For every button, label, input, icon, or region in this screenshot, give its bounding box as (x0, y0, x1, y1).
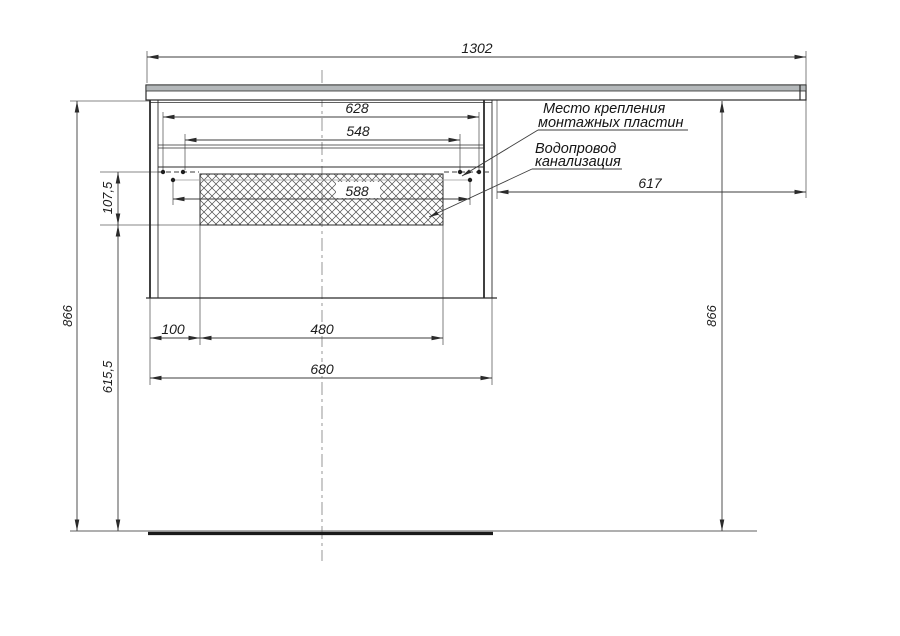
dimension-lines (77, 57, 806, 531)
technical-drawing-canvas: 1302 628 548 588 617 866 107,5 615,5 866… (0, 0, 900, 636)
dim-mount-outer-span: 628 (345, 100, 369, 116)
dim-mount-inner-span: 548 (346, 123, 370, 139)
dim-left-inset: 100 (161, 321, 185, 337)
dim-recess-width: 480 (310, 321, 334, 337)
dim-plumbing-zone-to-floor: 615,5 (100, 360, 115, 393)
dim-countertop-width: 1302 (461, 40, 492, 56)
label-plumbing-line2: канализация (535, 154, 621, 170)
dim-plumbing-zone-height: 107,5 (100, 181, 115, 214)
plumbing-zone-hatch (173, 174, 470, 225)
floor-line (70, 531, 757, 534)
dim-plumbing-zone-width: 588 (345, 183, 369, 199)
annotation-labels: Место крепления монтажных пластин Водопр… (535, 101, 683, 170)
label-mounting-line2: монтажных пластин (538, 115, 683, 131)
countertop (146, 85, 806, 100)
dim-height-left: 866 (60, 304, 75, 326)
dim-right-overhang: 617 (638, 175, 663, 191)
dim-height-right: 866 (704, 304, 719, 326)
dim-cabinet-width: 680 (310, 361, 334, 377)
